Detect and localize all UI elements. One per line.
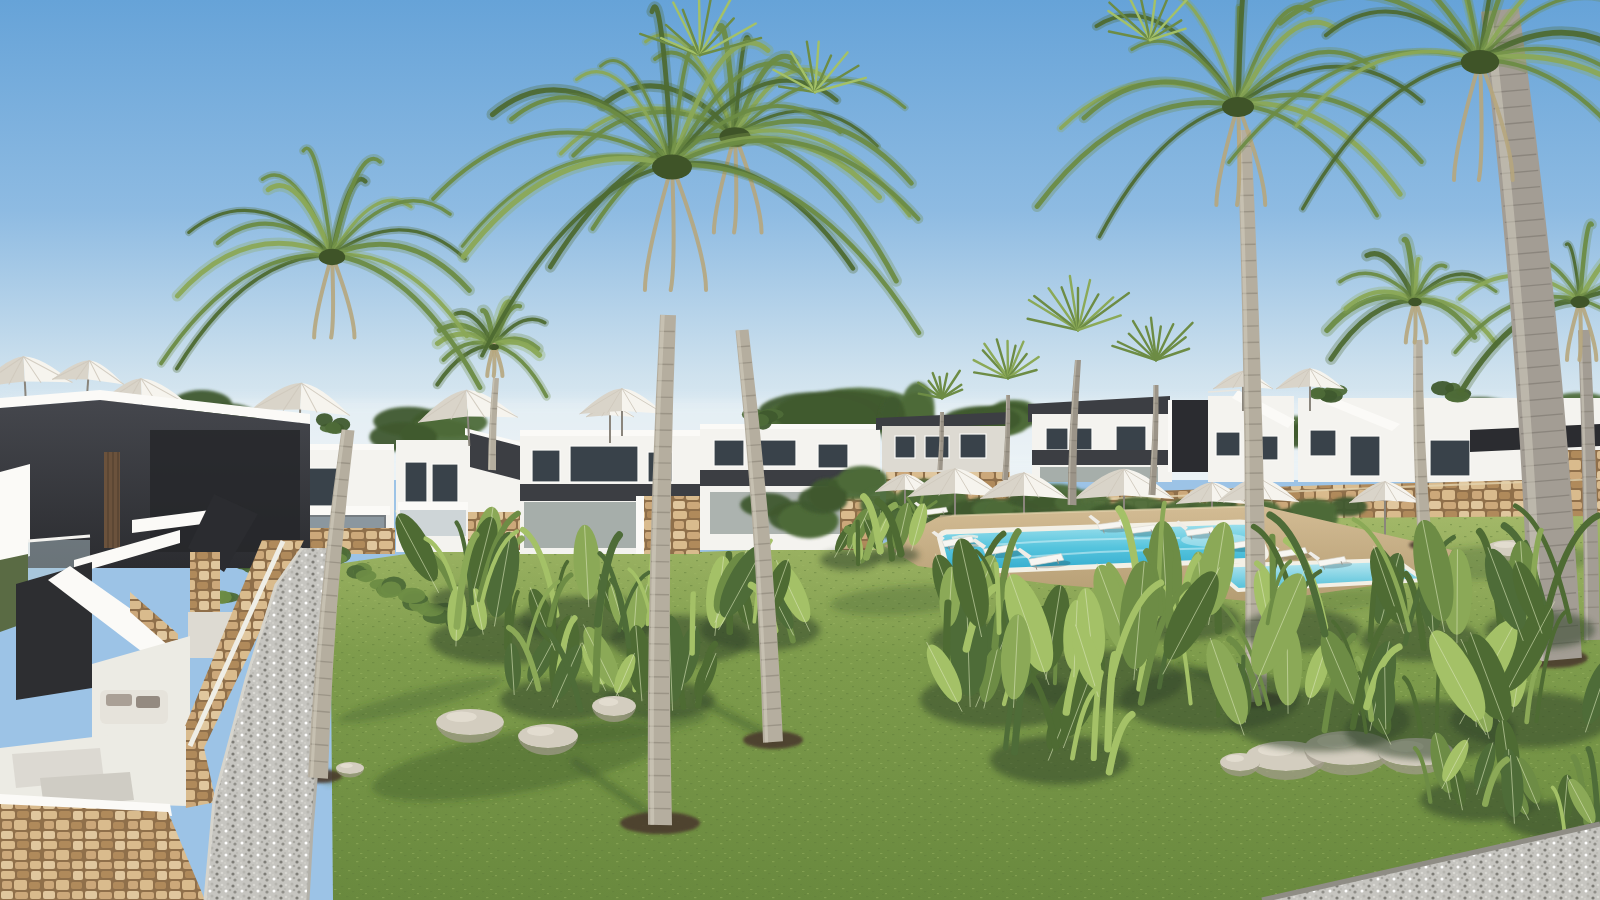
render-canvas bbox=[0, 0, 1600, 900]
white-edge bbox=[1168, 400, 1172, 472]
window bbox=[1116, 426, 1146, 452]
flagstone-wall bbox=[0, 804, 205, 900]
terrace-slab bbox=[398, 502, 468, 510]
window bbox=[925, 436, 949, 458]
sofa-cushion bbox=[136, 696, 160, 708]
stair-parapet bbox=[0, 464, 30, 564]
stone-patch bbox=[190, 552, 220, 614]
window bbox=[532, 450, 560, 482]
window bbox=[1046, 428, 1068, 450]
window bbox=[405, 462, 427, 502]
window bbox=[1216, 432, 1240, 456]
window bbox=[895, 436, 915, 458]
window bbox=[1310, 430, 1336, 456]
white-post bbox=[636, 496, 644, 554]
window bbox=[1430, 440, 1470, 476]
window-tall bbox=[1350, 436, 1380, 476]
window bbox=[960, 434, 986, 458]
window bbox=[432, 464, 458, 502]
sofa-cushion bbox=[106, 694, 132, 706]
window-wide bbox=[570, 446, 638, 482]
charcoal-box bbox=[1172, 400, 1208, 472]
window bbox=[818, 444, 848, 468]
scene-svg bbox=[0, 0, 1600, 900]
window bbox=[714, 440, 744, 466]
building-house-c bbox=[520, 430, 700, 554]
